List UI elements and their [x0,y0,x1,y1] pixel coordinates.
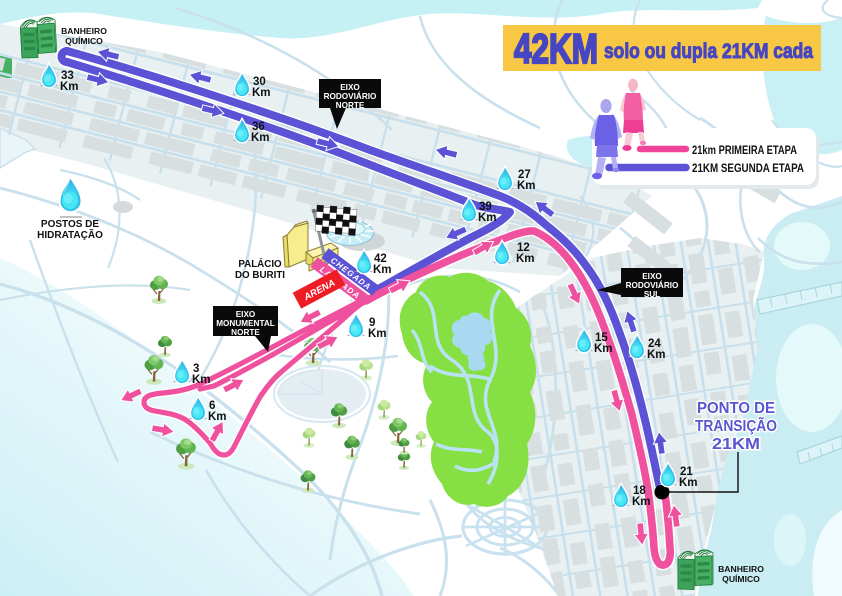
svg-text:Km: Km [478,212,497,224]
svg-text:Km: Km [632,496,651,508]
svg-text:PONTO DE: PONTO DE [697,400,775,417]
svg-text:RODOVIÁRIO: RODOVIÁRIO [324,91,377,101]
svg-text:Km: Km [368,328,387,340]
svg-text:QUÍMICO: QUÍMICO [65,36,103,46]
svg-text:Km: Km [252,87,271,99]
svg-text:POSTOS DE: POSTOS DE [41,219,99,230]
svg-text:SUL: SUL [644,290,660,299]
svg-text:21KM: 21KM [712,436,760,453]
svg-text:PALÁCIO: PALÁCIO [238,258,282,270]
svg-text:Km: Km [373,264,392,276]
svg-text:NORTE: NORTE [336,101,365,110]
svg-text:BANHEIRO: BANHEIRO [718,564,764,574]
svg-text:Km: Km [517,180,536,192]
svg-text:NORTE: NORTE [231,328,260,337]
svg-text:DO BURITI: DO BURITI [235,270,285,281]
svg-text:EIXO: EIXO [642,272,662,281]
svg-text:Km: Km [251,132,270,144]
svg-text:42KM: 42KM [514,25,598,72]
svg-text:solo ou dupla 21KM cada: solo ou dupla 21KM cada [604,40,813,63]
svg-text:21km PRIMEIRA ETAPA: 21km PRIMEIRA ETAPA [692,145,797,157]
svg-text:Km: Km [594,343,613,355]
svg-text:21KM SEGUNDA ETAPA: 21KM SEGUNDA ETAPA [692,163,804,175]
svg-text:Km: Km [647,349,666,361]
svg-text:QUÍMICO: QUÍMICO [722,574,760,584]
svg-text:Km: Km [208,411,227,423]
svg-text:RODOVIÁRIO: RODOVIÁRIO [626,280,679,290]
svg-text:HIDRATAÇÃO: HIDRATAÇÃO [37,228,103,241]
svg-text:TRANSIÇÃO: TRANSIÇÃO [695,417,777,435]
svg-text:BANHEIRO: BANHEIRO [61,26,107,36]
svg-text:Km: Km [60,81,79,93]
svg-text:Km: Km [679,477,698,489]
svg-text:EIXO: EIXO [340,83,360,92]
svg-text:Km: Km [192,374,211,386]
svg-text:Km: Km [516,253,535,265]
svg-text:MONUMENTAL: MONUMENTAL [216,319,275,328]
svg-text:EIXO: EIXO [236,310,256,319]
